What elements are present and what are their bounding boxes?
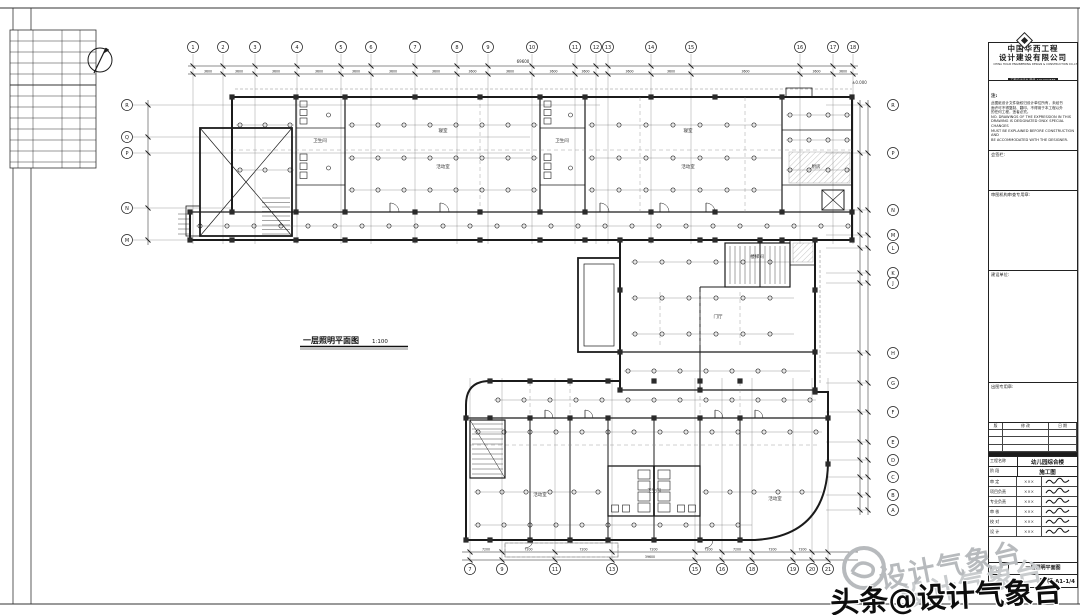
axis-label: 17	[830, 45, 836, 51]
dim-text: 39600	[645, 555, 655, 559]
signature-scribble	[1044, 477, 1074, 486]
column	[648, 209, 653, 214]
dim-text: 3600	[667, 70, 675, 74]
dim-text: 3600	[204, 70, 212, 74]
dim-text: 3600	[839, 70, 847, 74]
column	[812, 349, 817, 354]
toilet-fixture	[300, 163, 307, 170]
toilet-fixture	[544, 154, 551, 161]
revision-grid: 版 修 改 日 期	[989, 423, 1077, 453]
notice-line: 此图纸设计文件版权归设计单位所有，未经书	[991, 101, 1075, 106]
sign-signature	[1042, 497, 1077, 506]
room-label: 门厅	[714, 313, 723, 320]
signature-scribble	[1044, 527, 1074, 536]
column	[757, 237, 762, 242]
room-label: 活动室	[768, 495, 782, 502]
axis-label: P	[125, 151, 128, 157]
column	[605, 415, 610, 420]
column	[582, 209, 587, 214]
column	[737, 378, 742, 383]
dim-text: 3600	[389, 70, 397, 74]
door-arc	[545, 410, 553, 418]
signature-row: 专业负责 ×××	[989, 497, 1077, 507]
stage-label: 阶 段	[989, 467, 1018, 476]
cad-drawing-page: 1234567891011121314151617186960036003600…	[0, 0, 1080, 615]
column	[293, 237, 298, 242]
axis-label: 21	[825, 567, 831, 573]
sign-role: 专业负责	[989, 497, 1017, 506]
sign-name: ×××	[1017, 527, 1042, 536]
notice-line: DRAWING IS DESIGNATED ONLY. SPECIAL CHAN…	[991, 119, 1075, 128]
toilet-fixture	[544, 118, 551, 124]
axis-label: 14	[648, 45, 654, 51]
dim-text: 3600	[741, 70, 749, 74]
axis-label: 1	[191, 45, 194, 51]
washbasin	[623, 505, 630, 512]
door-arc	[600, 203, 609, 212]
column	[412, 237, 417, 242]
axis-label: 9	[486, 45, 489, 51]
toilet-stall	[638, 503, 650, 512]
section-label: 出图专用章:	[989, 383, 1077, 391]
column	[812, 237, 817, 242]
door-arc	[390, 203, 399, 212]
axis-label: A	[891, 508, 895, 514]
room-label: 活动室	[436, 163, 450, 170]
sign-signature	[1042, 527, 1077, 536]
dim-text: 3600	[625, 70, 633, 74]
column	[712, 209, 717, 214]
column	[412, 209, 417, 214]
column	[648, 237, 653, 242]
dim-text: 7200	[482, 548, 490, 552]
rev-col: 修 改	[1003, 423, 1049, 430]
column	[651, 378, 656, 383]
sign-name: ×××	[1017, 477, 1042, 486]
divider-bar	[989, 453, 1077, 457]
room-label: 活动室	[681, 163, 695, 170]
axis-label: 3	[253, 45, 256, 51]
column	[697, 415, 702, 420]
sign-name: ×××	[1017, 487, 1042, 496]
plan-scale: 1:100	[372, 339, 388, 345]
axis-label: G	[891, 381, 895, 387]
plan-title: 一层照明平面图	[303, 336, 359, 345]
light-fixture	[569, 166, 573, 170]
column	[697, 237, 702, 242]
column	[849, 209, 854, 214]
axis-label: 15	[688, 45, 694, 51]
column	[651, 415, 656, 420]
column	[537, 94, 542, 99]
toilet-fixture	[544, 163, 551, 170]
sign-name: ×××	[1017, 507, 1042, 516]
column	[617, 237, 622, 242]
column	[779, 237, 784, 242]
signature-row: 审 定 ×××	[989, 477, 1077, 487]
column	[812, 287, 817, 292]
column	[412, 94, 417, 99]
column	[477, 237, 482, 242]
axis-label: 19	[790, 567, 796, 573]
sign-role: 审 定	[989, 477, 1017, 486]
column	[527, 537, 532, 542]
toilet-fixture	[544, 101, 551, 107]
axis-label: 18	[749, 567, 755, 573]
axis-label: D	[891, 458, 895, 464]
project-label: 工程名称	[989, 457, 1018, 466]
toilet-fixture	[300, 118, 307, 124]
column	[187, 237, 192, 242]
column	[537, 209, 542, 214]
review-stamp-section: 审图机构审查专用章:	[989, 191, 1077, 271]
copyright-notice: 注: 此图纸设计文件版权归设计单位所有，未经书面许可不得复制、翻印，不得用于本工…	[989, 81, 1077, 151]
column	[463, 537, 468, 542]
open-court-inner	[584, 264, 614, 346]
axis-label: 11	[572, 45, 578, 51]
axis-label: 8	[455, 45, 458, 51]
column	[737, 537, 742, 542]
dim-text: 3600	[432, 70, 440, 74]
dim-text: 69600	[517, 59, 530, 64]
axis-label: 2	[221, 45, 224, 51]
toilet-stall	[658, 503, 670, 512]
signature-row: 审 核 ×××	[989, 507, 1077, 517]
light-fixture	[327, 166, 331, 170]
toilet-stall	[638, 470, 650, 479]
column	[779, 209, 784, 214]
stage-row: 阶 段 施工图	[989, 467, 1077, 477]
axis-label: M	[125, 238, 129, 244]
axis-label: R	[125, 103, 129, 109]
axis-label: 18	[850, 45, 856, 51]
axis-label: 13	[609, 567, 615, 573]
stamp-section: 出图专用章:	[989, 383, 1077, 423]
column	[697, 387, 702, 392]
door-arc	[715, 410, 723, 418]
toilet-fixture	[300, 110, 307, 116]
axis-label: 13	[605, 45, 611, 51]
axis-label: 20	[809, 567, 815, 573]
sign-name: ×××	[1017, 497, 1042, 506]
dim-text: 3600	[581, 70, 589, 74]
column	[567, 415, 572, 420]
sign-section: 会签栏:	[989, 151, 1077, 191]
sign-signature	[1042, 517, 1077, 526]
column	[697, 537, 702, 542]
signature-scribble	[1044, 497, 1074, 506]
column	[229, 237, 234, 242]
column	[229, 209, 234, 214]
column	[487, 537, 492, 542]
room-label: 卫生间	[647, 487, 661, 494]
column	[605, 378, 610, 383]
column	[651, 537, 656, 542]
owner-section: 建设单位:	[989, 271, 1077, 383]
column	[648, 94, 653, 99]
sign-signature	[1042, 507, 1077, 516]
dim-text: 7200	[579, 548, 587, 552]
axis-label: 10	[529, 45, 535, 51]
room-label: 厨房	[812, 163, 821, 170]
dim-text: 7200	[768, 548, 776, 552]
axis-label: B	[891, 493, 895, 499]
column	[229, 94, 234, 99]
project-name-row: 工程名称 幼儿园综合楼	[989, 457, 1077, 467]
column	[812, 389, 817, 394]
column	[617, 349, 622, 354]
column	[487, 378, 492, 383]
project-value: 幼儿园综合楼	[1018, 457, 1077, 466]
dim-text: 7200	[733, 548, 741, 552]
column	[293, 209, 298, 214]
section-label: 审图机构审查专用章:	[989, 191, 1077, 199]
sign-role: 项目负责	[989, 487, 1017, 496]
washbasin	[678, 505, 685, 512]
axis-label: 4	[295, 45, 298, 51]
stage-value: 施工图	[1018, 467, 1077, 476]
notice-line: MUST BE EXPLAINED BEFORE CONSTRUCTION AN…	[991, 129, 1075, 138]
column	[825, 415, 830, 420]
sign-role: 审 核	[989, 507, 1017, 516]
door-arc	[440, 203, 449, 212]
axis-label: Q	[125, 135, 129, 141]
axis-label: 15	[692, 567, 698, 573]
dim-text: 7200	[649, 548, 657, 552]
light-fixture	[327, 113, 331, 117]
axis-label: R	[891, 103, 895, 109]
room-label: 寝室	[684, 127, 693, 134]
axis-label: J	[891, 281, 893, 287]
door-arc	[660, 203, 669, 212]
floor-plan-svg: 1234567891011121314151617186960036003600…	[0, 0, 1080, 615]
signature-row: 项目负责 ×××	[989, 487, 1077, 497]
notice-line: BE ACCOMMODATED WITH THE DESIGNER.	[991, 138, 1075, 143]
sign-signature	[1042, 487, 1077, 496]
column	[825, 461, 830, 466]
entry-canopy	[505, 543, 618, 557]
entry-canopy-dashed	[505, 543, 618, 557]
column	[537, 237, 542, 242]
column	[567, 378, 572, 383]
axis-label: P	[891, 151, 894, 157]
signoff-table	[10, 30, 96, 168]
firm-name-cn-2: 设计建设有限公司	[989, 54, 1077, 63]
column	[342, 94, 347, 99]
room-label: 卫生间	[313, 137, 327, 144]
rev-col: 版	[989, 423, 1003, 430]
toilet-fixture	[300, 154, 307, 161]
door-arc	[755, 410, 763, 418]
axis-label: M	[891, 233, 895, 239]
room-label: 活动室	[533, 491, 547, 498]
level-note: ±0.000	[852, 80, 867, 85]
column	[849, 237, 854, 242]
toilet-fixture	[300, 172, 307, 179]
sign-role: 校 对	[989, 517, 1017, 526]
dim-text: 3600	[272, 70, 280, 74]
sign-signature	[1042, 477, 1077, 486]
room-label: 卫生间	[555, 137, 569, 144]
dim-text: 3600	[315, 70, 323, 74]
column	[605, 537, 610, 542]
axis-label: N	[891, 208, 895, 214]
column	[737, 415, 742, 420]
toilet-fixture	[544, 172, 551, 179]
column	[567, 537, 572, 542]
column	[477, 94, 482, 99]
dim-text: 7200	[798, 548, 806, 552]
washbasin	[612, 505, 619, 512]
axis-label: 7	[413, 45, 416, 51]
signature-scribble	[1044, 507, 1074, 516]
axis-label: 16	[719, 567, 725, 573]
column	[712, 237, 717, 242]
door-arc	[585, 410, 593, 418]
axis-label: E	[891, 440, 894, 446]
signature-row: 校 对 ×××	[989, 517, 1077, 527]
column	[779, 94, 784, 99]
room-label: 楼梯间	[750, 253, 764, 260]
axis-label: 11	[552, 567, 558, 573]
toilet-fixture	[300, 101, 307, 107]
axis-label: 7	[468, 567, 471, 573]
rev-col: 日 期	[1049, 423, 1077, 430]
column	[527, 378, 532, 383]
notice-title: 注:	[991, 94, 997, 99]
dim-text: 3600	[352, 70, 360, 74]
axis-label: H	[891, 351, 895, 357]
axis-label: L	[892, 246, 895, 252]
column	[477, 209, 482, 214]
dim-text: 3600	[506, 70, 514, 74]
toilet-stall	[658, 470, 670, 479]
firm-logo-diamond	[1012, 28, 1036, 52]
column	[617, 287, 622, 292]
light-fixture	[569, 113, 573, 117]
column	[582, 94, 587, 99]
dim-text: 3600	[812, 70, 820, 74]
hatch-area	[793, 243, 813, 262]
signature-scribble	[1044, 517, 1074, 526]
column	[712, 94, 717, 99]
dim-text: 3600	[235, 70, 243, 74]
column	[527, 415, 532, 420]
column	[487, 415, 492, 420]
column	[617, 387, 622, 392]
axis-label: F	[892, 410, 895, 416]
axis-label: N	[125, 206, 129, 212]
column	[463, 415, 468, 420]
column	[849, 94, 854, 99]
roof-bump	[786, 88, 812, 97]
axis-label: C	[891, 475, 895, 481]
axis-label: 9	[500, 567, 503, 573]
signature-table: 审 定 ××× 项目负责 ××× 专业负责 ××× 审 核 ××× 校 对 ××…	[989, 477, 1077, 537]
axis-label: 12	[593, 45, 599, 51]
room-label: 寝室	[439, 127, 448, 134]
axis-label: 6	[369, 45, 372, 51]
washbasin	[689, 505, 696, 512]
column	[293, 94, 298, 99]
title-block: 中国华西工程 设计建设有限公司 CHINA HUAXI ENGINEERING …	[988, 42, 1078, 588]
toilet-fixture	[544, 110, 551, 116]
signature-scribble	[1044, 487, 1074, 496]
column	[697, 378, 702, 383]
column	[187, 209, 192, 214]
column	[342, 237, 347, 242]
axis-label: 5	[339, 45, 342, 51]
sign-name: ×××	[1017, 517, 1042, 526]
column	[582, 237, 587, 242]
stairwell	[725, 243, 790, 287]
dim-text: 3600	[549, 70, 557, 74]
firm-name-en: CHINA HUAXI ENGINEERING DESIGN & CONSTRU…	[993, 62, 1072, 66]
section-label: 建设单位:	[989, 271, 1077, 279]
axis-label: 16	[797, 45, 803, 51]
column	[342, 209, 347, 214]
dim-text: 3600	[468, 70, 476, 74]
building-plan: 活动室寝室卫生间卫生间活动室寝室厨房门厅楼梯间活动室卫生间活动室	[178, 88, 855, 557]
section-label: 会签栏:	[989, 151, 1077, 159]
